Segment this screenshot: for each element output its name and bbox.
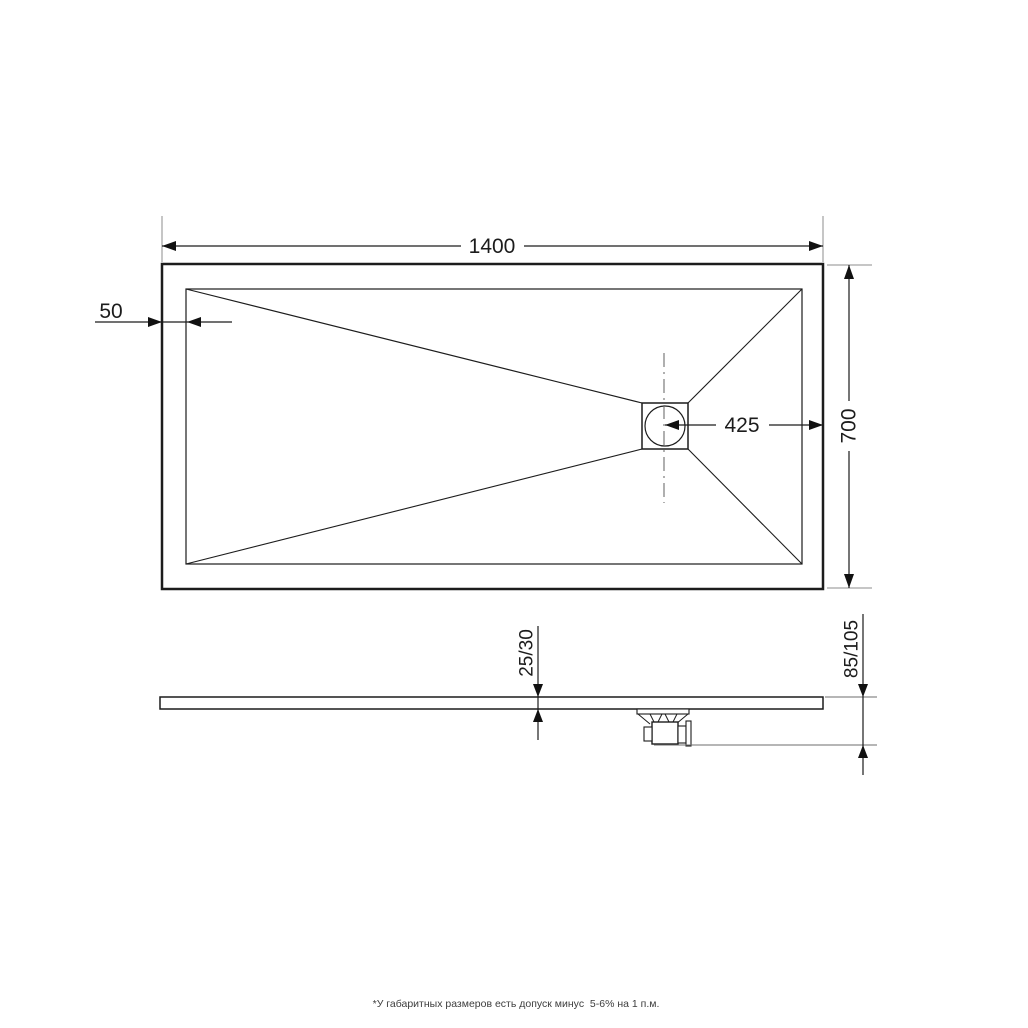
- trap-wedge-right: [665, 714, 677, 722]
- arrow-down-icon: [858, 684, 868, 697]
- dimension-label-width: 700: [838, 408, 861, 443]
- arrow-up-icon: [858, 745, 868, 758]
- trap-outlet-flange: [686, 721, 691, 746]
- trap-outlet: [678, 726, 686, 743]
- arrow-down-icon: [533, 684, 543, 697]
- arrow-right-icon: [148, 317, 162, 327]
- dimension-label-rim: 50: [99, 300, 122, 323]
- trap-left-tab: [644, 727, 652, 741]
- dimension-thickness: 25/30: [517, 626, 544, 740]
- trap-body: [652, 722, 678, 744]
- dimension-label-overall-height: 85/105: [842, 620, 863, 678]
- tolerance-footnote: *У габаритных размеров есть допуск минус…: [373, 998, 660, 1010]
- arrow-left-icon: [162, 241, 176, 251]
- dimension-label-thickness: 25/30: [517, 629, 538, 677]
- arrow-right-icon: [809, 241, 823, 251]
- arrow-up-icon: [844, 265, 854, 279]
- side-view: [160, 697, 877, 746]
- dimension-label-drain-offset: 425: [724, 414, 759, 437]
- drawing-page: 1400 50 700 425: [0, 0, 1028, 1028]
- dimension-length: 1400: [162, 216, 823, 262]
- dimension-width: 700: [827, 265, 872, 588]
- trap-wedge-left: [650, 714, 662, 722]
- trap-flange: [637, 709, 689, 714]
- dimension-label-length: 1400: [469, 235, 516, 258]
- tray-profile: [160, 697, 823, 709]
- shower-tray-drawing: 1400 50 700 425: [0, 0, 1028, 1028]
- trap-funnel-left: [638, 714, 650, 724]
- arrow-down-icon: [844, 574, 854, 588]
- arrow-up-icon: [533, 709, 543, 722]
- dimension-overall-height: 85/105: [825, 614, 877, 775]
- drain-frame: [642, 403, 688, 449]
- drain-trap: [637, 709, 691, 746]
